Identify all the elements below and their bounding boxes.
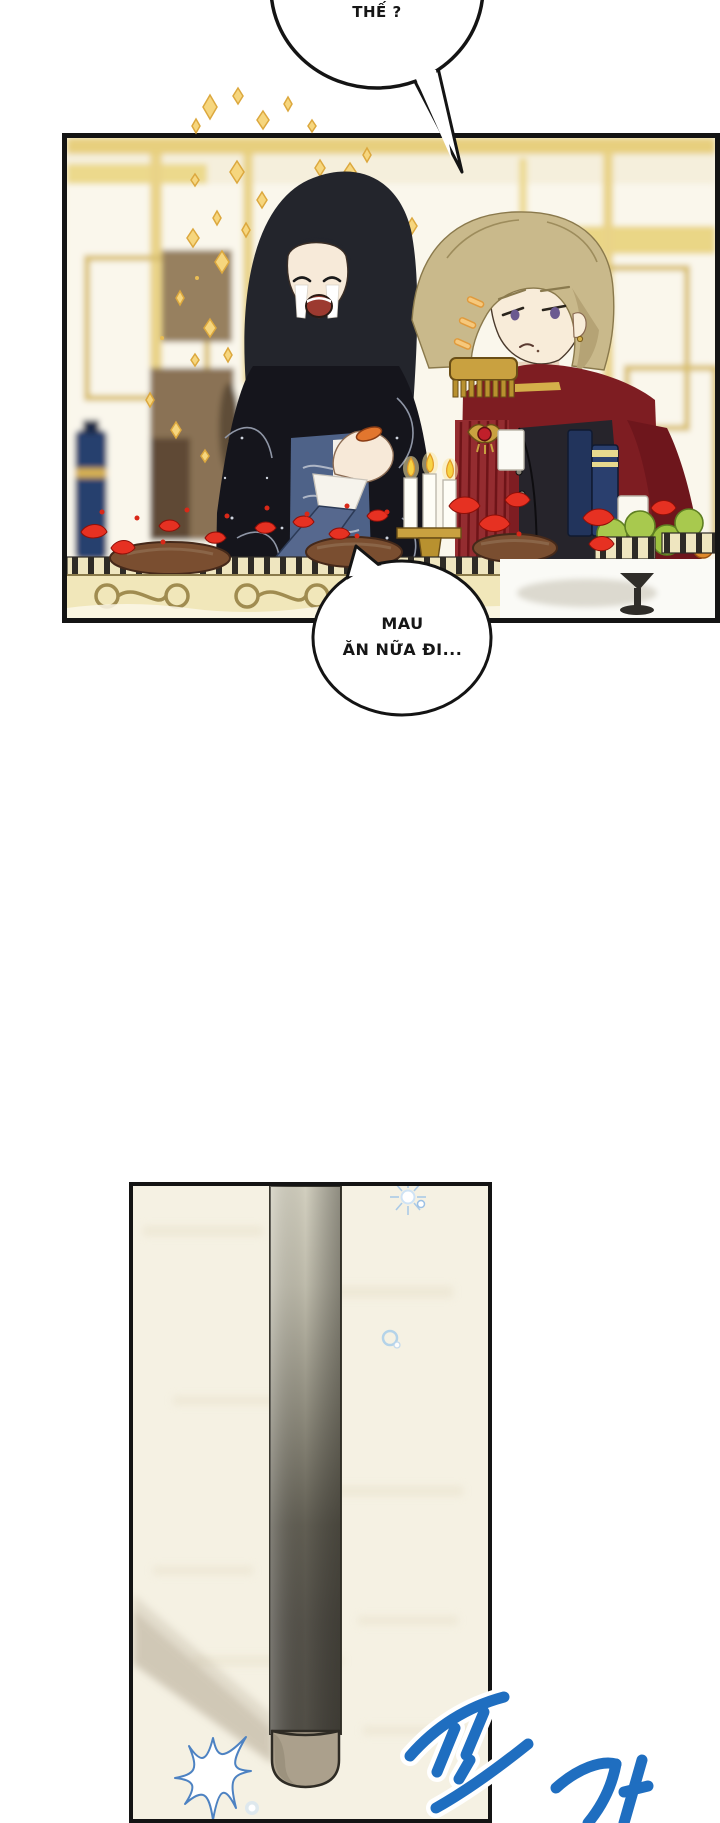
speech-text-bottom-line2: ĂN NỮA ĐI... (320, 637, 485, 663)
speech-text-bottom-line1: MAU (320, 611, 485, 637)
cane-pole (270, 1186, 341, 1787)
speech-bubble-top (240, 0, 490, 190)
white-cup (498, 430, 524, 470)
comic-page: THẾ ? MAU ĂN NỮA ĐI... (0, 0, 720, 1823)
sfx-glyph-tto (410, 1697, 528, 1808)
glow-dot (245, 1801, 259, 1815)
speech-text-bottom: MAU ĂN NỮA ĐI... (320, 611, 485, 663)
chin-mole (537, 350, 540, 353)
sfx-lettering (380, 1650, 720, 1823)
earring (577, 336, 582, 341)
tablecloth-right (500, 559, 715, 618)
speech-text-top: THẾ ? (317, 3, 437, 21)
goblet-base (620, 605, 654, 615)
